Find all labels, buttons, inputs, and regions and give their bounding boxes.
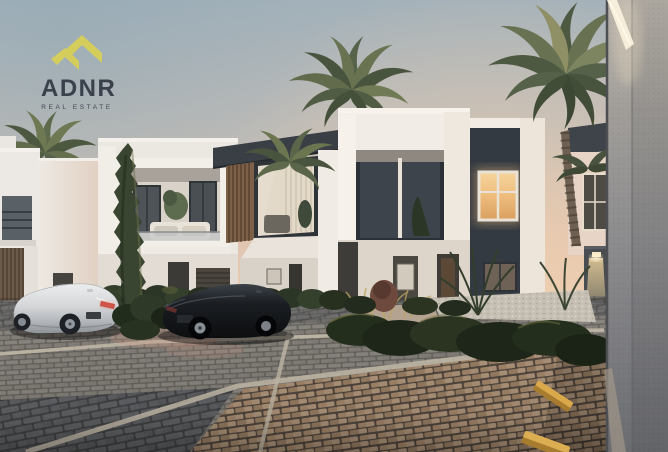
adnr-roof-monogram-icon [49, 31, 105, 75]
license-plate [86, 312, 101, 319]
white-side-wall [38, 158, 100, 304]
foreground-wall [604, 0, 668, 452]
logo-title: ADNR [41, 77, 113, 101]
scene-image: ADNR REAL ESTATE [0, 0, 668, 452]
balcony-furniture [264, 215, 290, 233]
lit-window [479, 172, 517, 220]
townhouse-far-left [0, 136, 40, 304]
utility-box [267, 269, 281, 284]
logo-subtitle: REAL ESTATE [41, 104, 113, 111]
utility-box [397, 264, 414, 290]
brand-logo: ADNR REAL ESTATE [41, 31, 113, 111]
wood-louver-panel [226, 162, 254, 243]
corner-townhouse [338, 108, 545, 320]
side-mirror [87, 289, 93, 292]
side-mirror [256, 290, 262, 293]
